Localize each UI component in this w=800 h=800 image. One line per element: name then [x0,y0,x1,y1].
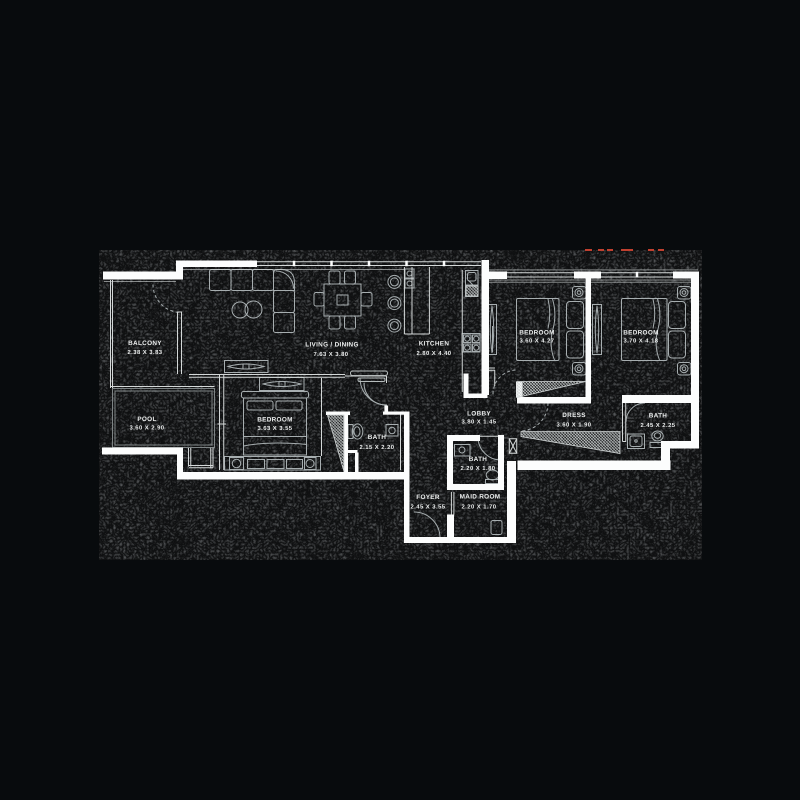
svg-text:2.80 X 4.40: 2.80 X 4.40 [416,350,451,357]
svg-text:2.45 X 3.55: 2.45 X 3.55 [410,504,445,511]
svg-text:2.20 X 1.70: 2.20 X 1.70 [461,503,496,510]
svg-text:BALCONY: BALCONY [128,340,162,347]
svg-text:LIVING / DINING: LIVING / DINING [305,342,359,349]
svg-text:MAID ROOM: MAID ROOM [460,494,501,501]
svg-text:BEDROOM: BEDROOM [519,330,554,337]
svg-text:3.60 X 2.90: 3.60 X 2.90 [129,424,164,431]
svg-text:BATH: BATH [469,456,488,463]
svg-text:KITCHEN: KITCHEN [419,341,450,348]
svg-text:BEDROOM: BEDROOM [257,417,292,424]
svg-text:3.70 X 4.18: 3.70 X 4.18 [623,338,658,345]
svg-text:BATH: BATH [368,434,387,441]
svg-text:3.60 X 1.90: 3.60 X 1.90 [556,422,591,429]
svg-text:2.38 X 3.83: 2.38 X 3.83 [127,349,162,356]
svg-text:BATH: BATH [649,413,668,420]
svg-text:2.45 X 2.25: 2.45 X 2.25 [640,422,675,429]
svg-text:DRESS: DRESS [562,412,586,419]
svg-text:3.80 X 1.45: 3.80 X 1.45 [461,419,496,426]
svg-text:FOYER: FOYER [416,494,440,501]
svg-text:BEDROOM: BEDROOM [623,330,658,337]
svg-text:2.20 X 1.80: 2.20 X 1.80 [460,465,495,472]
svg-text:3.63 X 3.55: 3.63 X 3.55 [257,425,292,432]
svg-text:POOL: POOL [137,416,156,423]
svg-text:2.15 X 2.20: 2.15 X 2.20 [359,444,394,451]
svg-text:LOBBY: LOBBY [467,411,491,418]
svg-text:7.63 X 3.80: 7.63 X 3.80 [313,351,348,358]
svg-text:3.60 X 4.27: 3.60 X 4.27 [519,338,554,345]
